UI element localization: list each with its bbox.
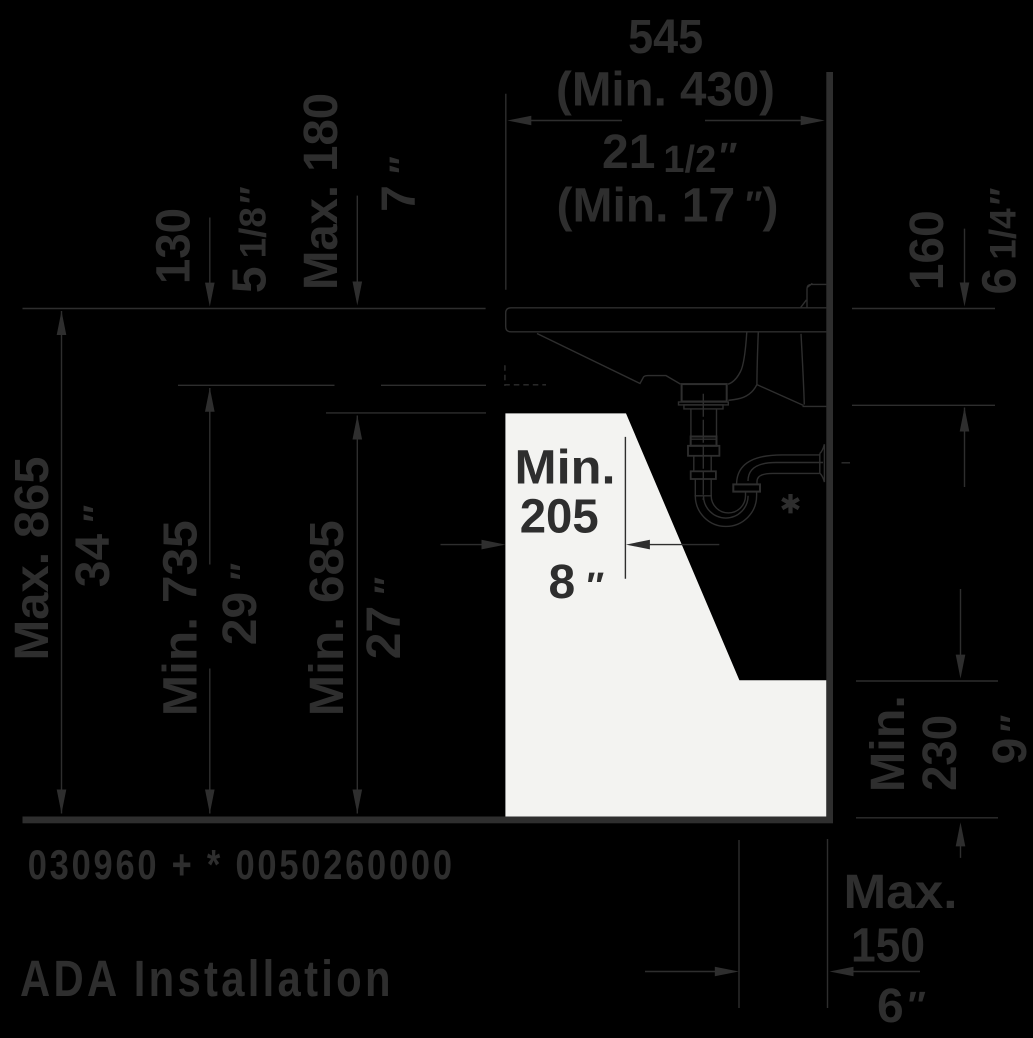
svg-text:6″: 6″ [877,980,926,1033]
svg-text:Min.: Min. [515,442,616,495]
svg-text:Min. 735: Min. 735 [155,520,208,716]
svg-text:Max. 180: Max. 180 [295,93,348,290]
svg-text:205: 205 [520,491,599,544]
svg-text:130: 130 [148,208,201,284]
svg-text:Max. 865: Max. 865 [6,457,59,661]
svg-text:545: 545 [628,11,703,64]
svg-text:Min.: Min. [862,695,915,792]
svg-text:(Min. 430): (Min. 430) [556,64,775,117]
svg-text:030960 + * 0050260000: 030960 + * 0050260000 [28,842,455,889]
svg-text:Max.: Max. [844,866,958,919]
svg-text:160: 160 [901,210,954,290]
svg-text:230: 230 [914,715,967,791]
svg-text:ADA Installation: ADA Installation [20,950,394,1007]
svg-text:150: 150 [851,920,925,973]
svg-text:Min. 685: Min. 685 [301,520,354,716]
